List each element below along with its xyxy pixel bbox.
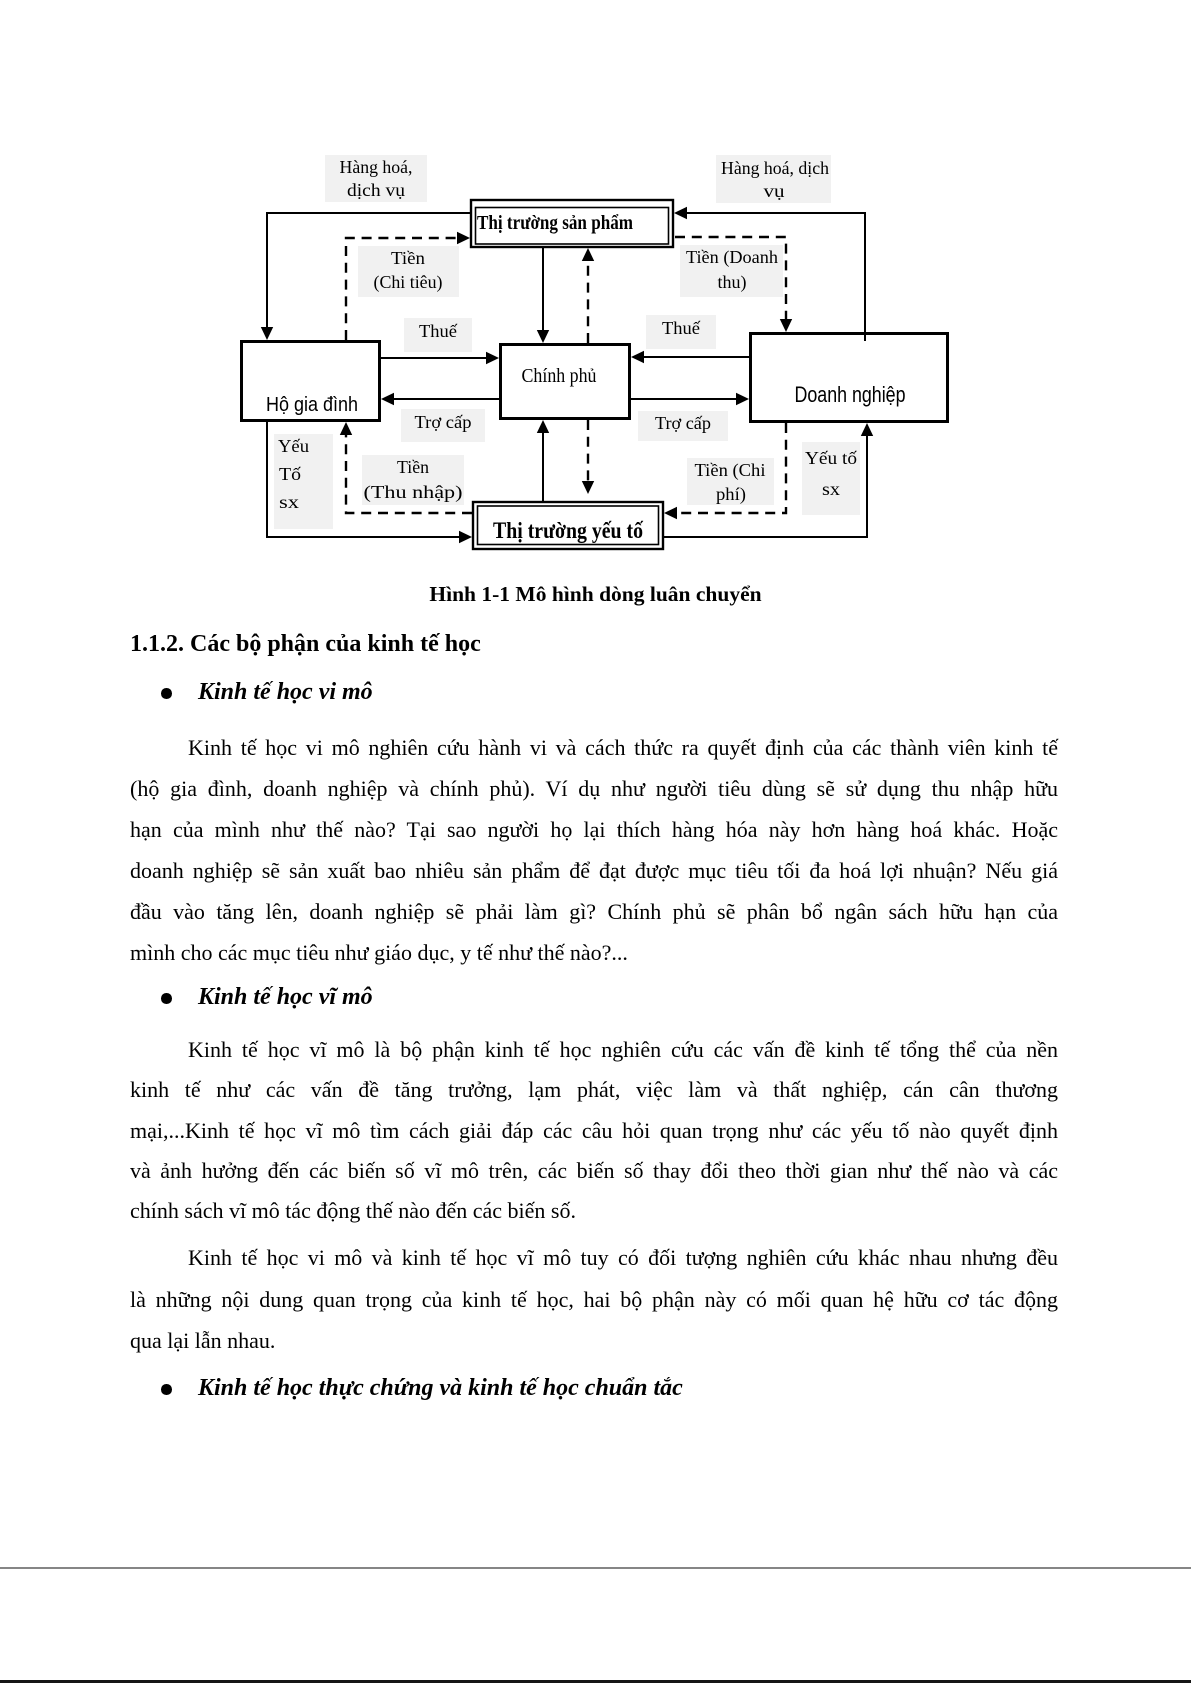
svg-text:phí): phí) bbox=[716, 484, 746, 504]
svg-text:Tiền (Chi: Tiền (Chi bbox=[695, 460, 766, 480]
svg-text:Trợ cấp: Trợ cấp bbox=[655, 413, 711, 433]
svg-text:Hộ gia đình: Hộ gia đình bbox=[266, 393, 358, 416]
svg-text:(Thu nhập): (Thu nhập) bbox=[364, 482, 463, 502]
svg-text:Tiền (Doanh: Tiền (Doanh bbox=[686, 247, 778, 267]
svg-text:Tiền: Tiền bbox=[391, 248, 425, 268]
svg-text:Doanh nghiệp: Doanh nghiệp bbox=[795, 382, 906, 407]
svg-text:Chính phủ: Chính phủ bbox=[522, 365, 597, 387]
svg-text:sx: sx bbox=[822, 479, 840, 499]
svg-text:thu): thu) bbox=[718, 272, 747, 292]
svg-text:Thuế: Thuế bbox=[419, 321, 458, 341]
svg-text:(Chi tiêu): (Chi tiêu) bbox=[374, 272, 443, 292]
svg-text:Thuế: Thuế bbox=[662, 318, 701, 338]
svg-text:Tố: Tố bbox=[279, 464, 301, 484]
svg-text:Hàng hoá,: Hàng hoá, bbox=[340, 157, 413, 177]
svg-text:sx: sx bbox=[279, 492, 299, 512]
svg-text:Tiền: Tiền bbox=[397, 457, 429, 477]
svg-text:Yếu: Yếu bbox=[278, 436, 309, 456]
svg-text:vụ: vụ bbox=[764, 181, 785, 201]
svg-text:Yếu tố: Yếu tố bbox=[805, 448, 857, 468]
svg-text:Hàng hoá, dịch: Hàng hoá, dịch bbox=[721, 158, 829, 178]
svg-text:dịch vụ: dịch vụ bbox=[347, 180, 405, 200]
svg-text:Thị trường yếu tố: Thị trường yếu tố bbox=[493, 518, 643, 543]
svg-text:Trợ cấp: Trợ cấp bbox=[415, 412, 472, 432]
svg-text:Thị trường sản phẩm: Thị trường sản phẩm bbox=[477, 212, 633, 234]
